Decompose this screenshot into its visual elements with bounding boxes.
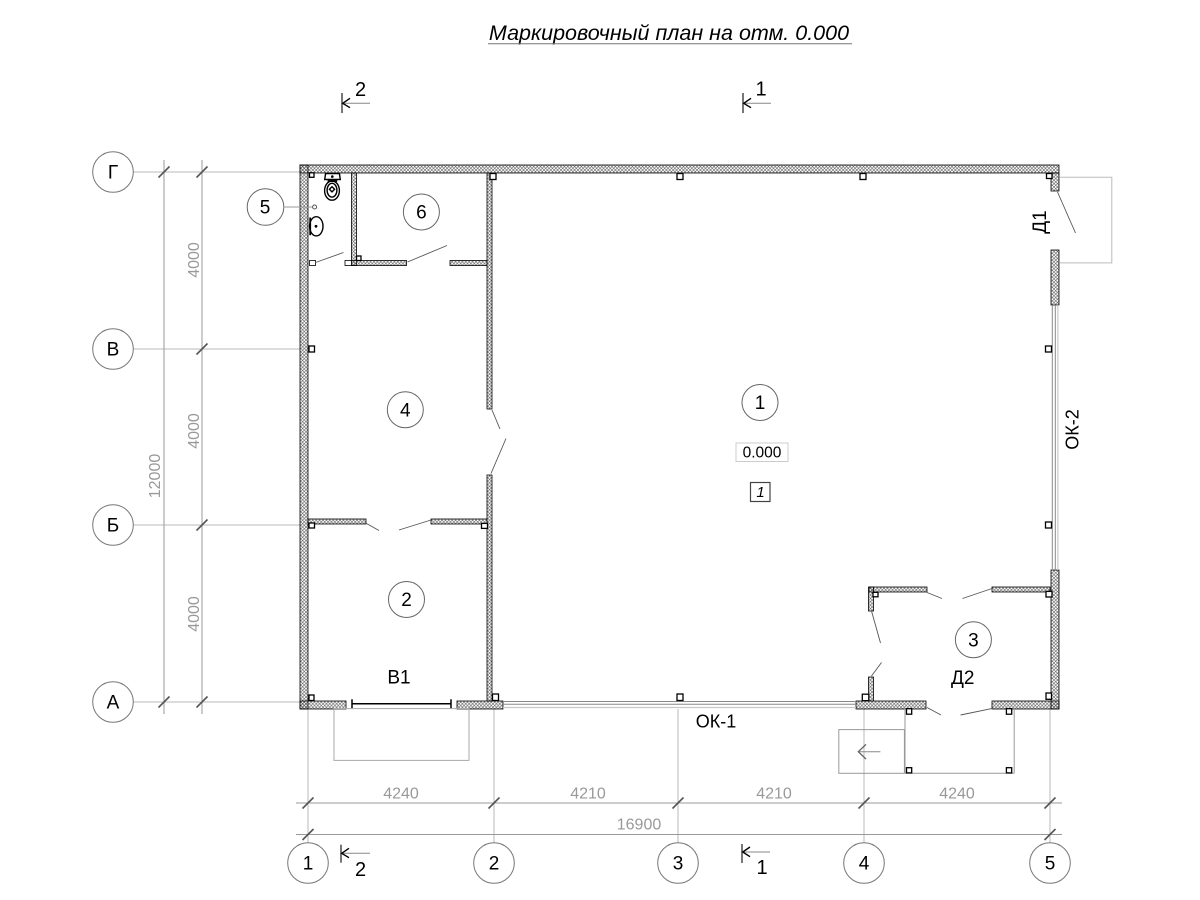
svg-text:Д1: Д1 xyxy=(1030,210,1051,233)
svg-text:В: В xyxy=(107,340,120,361)
svg-text:Д2: Д2 xyxy=(951,668,974,689)
svg-text:3: 3 xyxy=(968,630,979,651)
svg-text:6: 6 xyxy=(416,203,427,224)
svg-text:5: 5 xyxy=(260,198,271,219)
svg-text:2: 2 xyxy=(489,854,500,875)
svg-text:2: 2 xyxy=(355,859,366,881)
svg-text:1: 1 xyxy=(756,857,767,879)
svg-text:Б: Б xyxy=(107,516,119,537)
svg-text:1: 1 xyxy=(755,79,766,101)
svg-text:4000: 4000 xyxy=(186,596,203,632)
svg-text:1: 1 xyxy=(756,484,764,501)
svg-text:4000: 4000 xyxy=(186,413,203,449)
svg-text:ОК-2: ОК-2 xyxy=(1063,409,1083,450)
svg-text:2: 2 xyxy=(355,79,366,101)
svg-text:3: 3 xyxy=(673,854,684,875)
svg-text:5: 5 xyxy=(1045,854,1056,875)
svg-text:4240: 4240 xyxy=(939,786,975,803)
svg-text:4210: 4210 xyxy=(756,786,792,803)
svg-text:1: 1 xyxy=(755,393,766,414)
svg-text:А: А xyxy=(107,693,120,714)
svg-text:16900: 16900 xyxy=(617,817,662,834)
svg-text:Г: Г xyxy=(108,163,118,184)
svg-text:4210: 4210 xyxy=(570,786,606,803)
svg-text:ОК-1: ОК-1 xyxy=(696,712,737,732)
svg-text:В1: В1 xyxy=(387,668,410,689)
svg-text:Маркировочный план на отм. 0.0: Маркировочный план на отм. 0.000 xyxy=(489,21,849,45)
svg-text:2: 2 xyxy=(401,590,412,611)
svg-text:1: 1 xyxy=(303,854,314,875)
svg-text:12000: 12000 xyxy=(147,454,164,499)
svg-text:0.000: 0.000 xyxy=(743,445,782,462)
svg-text:4: 4 xyxy=(859,854,870,875)
svg-text:4240: 4240 xyxy=(383,786,419,803)
svg-text:4: 4 xyxy=(400,400,411,421)
svg-text:4000: 4000 xyxy=(186,242,203,278)
